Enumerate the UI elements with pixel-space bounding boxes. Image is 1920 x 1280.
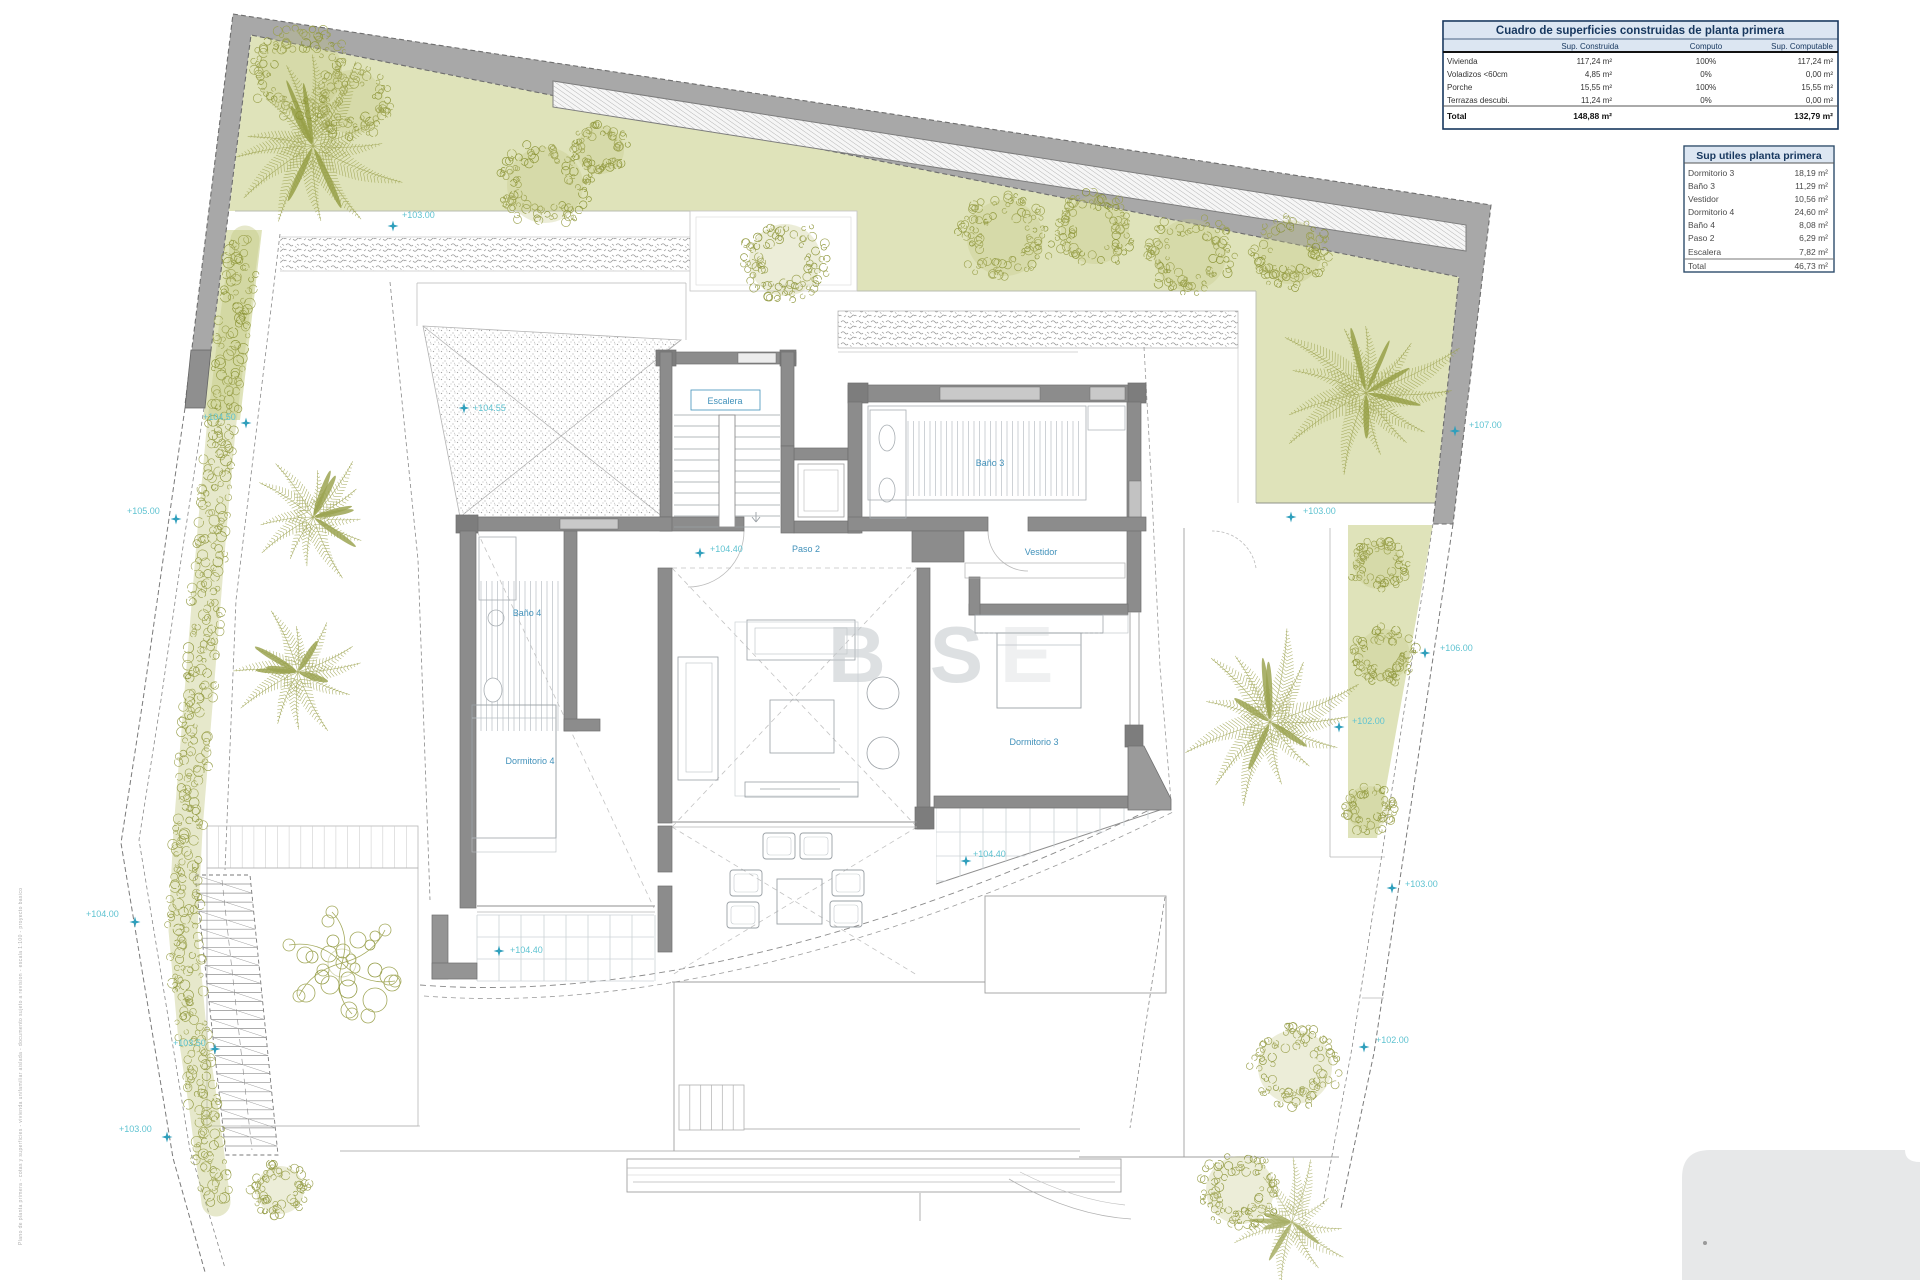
- svg-text:+103.00: +103.00: [1405, 879, 1438, 889]
- svg-text:E: E: [1000, 610, 1097, 699]
- svg-text:Baño 3: Baño 3: [976, 458, 1005, 468]
- svg-text:+102.00: +102.00: [1376, 1035, 1409, 1045]
- svg-text:Porche: Porche: [1447, 83, 1473, 92]
- svg-text:Escalera: Escalera: [707, 396, 742, 406]
- svg-text:7,82 m²: 7,82 m²: [1799, 247, 1828, 257]
- svg-text:+103.50: +103.50: [173, 1038, 206, 1048]
- svg-text:0%: 0%: [1700, 96, 1712, 105]
- svg-text:11,29 m²: 11,29 m²: [1795, 181, 1828, 191]
- svg-text:11,24 m²: 11,24 m²: [1581, 96, 1612, 105]
- svg-text:Sup. Computable: Sup. Computable: [1771, 42, 1833, 51]
- svg-text:0%: 0%: [1700, 70, 1712, 79]
- svg-text:Voladizos <60cm: Voladizos <60cm: [1447, 70, 1508, 79]
- svg-text:Sup utiles planta primera: Sup utiles planta primera: [1696, 150, 1822, 162]
- svg-text:Total: Total: [1447, 111, 1467, 121]
- svg-text:+103.00: +103.00: [119, 1124, 152, 1134]
- svg-text:6,29 m²: 6,29 m²: [1799, 233, 1828, 243]
- svg-text:Dormitorio 4: Dormitorio 4: [1688, 207, 1735, 217]
- svg-text:+104.55: +104.55: [473, 403, 506, 413]
- svg-text:+103.00: +103.00: [1303, 506, 1336, 516]
- svg-text:Paso 2: Paso 2: [792, 544, 820, 554]
- svg-text:Vestidor: Vestidor: [1688, 194, 1719, 204]
- svg-text:+104.40: +104.40: [973, 849, 1006, 859]
- svg-text:Vivienda: Vivienda: [1447, 57, 1478, 66]
- svg-text:148,88 m²: 148,88 m²: [1573, 111, 1612, 121]
- svg-text:Dormitorio 3: Dormitorio 3: [1009, 737, 1058, 747]
- svg-text:+104.40: +104.40: [510, 945, 543, 955]
- svg-text:+107.00: +107.00: [1469, 420, 1502, 430]
- svg-text:117,24 m²: 117,24 m²: [1577, 57, 1613, 66]
- svg-text:Computo: Computo: [1690, 42, 1723, 51]
- svg-text:10,56 m²: 10,56 m²: [1794, 194, 1828, 204]
- svg-text:132,79 m²: 132,79 m²: [1794, 111, 1833, 121]
- svg-text:Terrazas descubi.: Terrazas descubi.: [1447, 96, 1510, 105]
- svg-text:Baño 4: Baño 4: [1688, 220, 1715, 230]
- svg-text:Baño 3: Baño 3: [1688, 181, 1715, 191]
- svg-text:+103.00: +103.00: [402, 210, 435, 220]
- svg-text:+104.50: +104.50: [203, 412, 236, 422]
- svg-text:Total: Total: [1688, 261, 1706, 271]
- svg-text:Paso 2: Paso 2: [1688, 233, 1715, 243]
- svg-text:0,00 m²: 0,00 m²: [1806, 96, 1833, 105]
- svg-text:+104.40: +104.40: [710, 544, 743, 554]
- svg-text:Baño 4: Baño 4: [513, 608, 542, 618]
- svg-text:18,19 m²: 18,19 m²: [1794, 168, 1828, 178]
- svg-text:15,55 m²: 15,55 m²: [1801, 83, 1833, 92]
- svg-text:+102.00: +102.00: [1352, 716, 1385, 726]
- svg-text:Sup. Construida: Sup. Construida: [1561, 42, 1619, 51]
- svg-text:Cuadro de superficies construi: Cuadro de superficies construidas de pla…: [1496, 25, 1785, 37]
- svg-text:46,73 m²: 46,73 m²: [1794, 261, 1828, 271]
- svg-text:+104.00: +104.00: [86, 909, 119, 919]
- svg-text:100%: 100%: [1696, 57, 1716, 66]
- svg-text:15,55 m²: 15,55 m²: [1580, 83, 1612, 92]
- svg-text:BS: BS: [828, 610, 1027, 699]
- svg-text:0,00 m²: 0,00 m²: [1806, 70, 1833, 79]
- svg-text:117,24 m²: 117,24 m²: [1798, 57, 1834, 66]
- svg-text:Dormitorio 3: Dormitorio 3: [1688, 168, 1735, 178]
- svg-text:24,60 m²: 24,60 m²: [1794, 207, 1828, 217]
- svg-text:Escalera: Escalera: [1688, 247, 1721, 257]
- svg-text:Dormitorio 4: Dormitorio 4: [505, 756, 554, 766]
- svg-text:+106.00: +106.00: [1440, 643, 1473, 653]
- svg-text:4,85 m²: 4,85 m²: [1585, 70, 1612, 79]
- svg-text:Vestidor: Vestidor: [1025, 547, 1058, 557]
- svg-text:100%: 100%: [1696, 83, 1716, 92]
- svg-text:Plano de planta primera - co: Plano de planta primera - cotas y superf…: [18, 888, 24, 1245]
- svg-text:8,08 m²: 8,08 m²: [1799, 220, 1828, 230]
- svg-text:+105.00: +105.00: [127, 506, 160, 516]
